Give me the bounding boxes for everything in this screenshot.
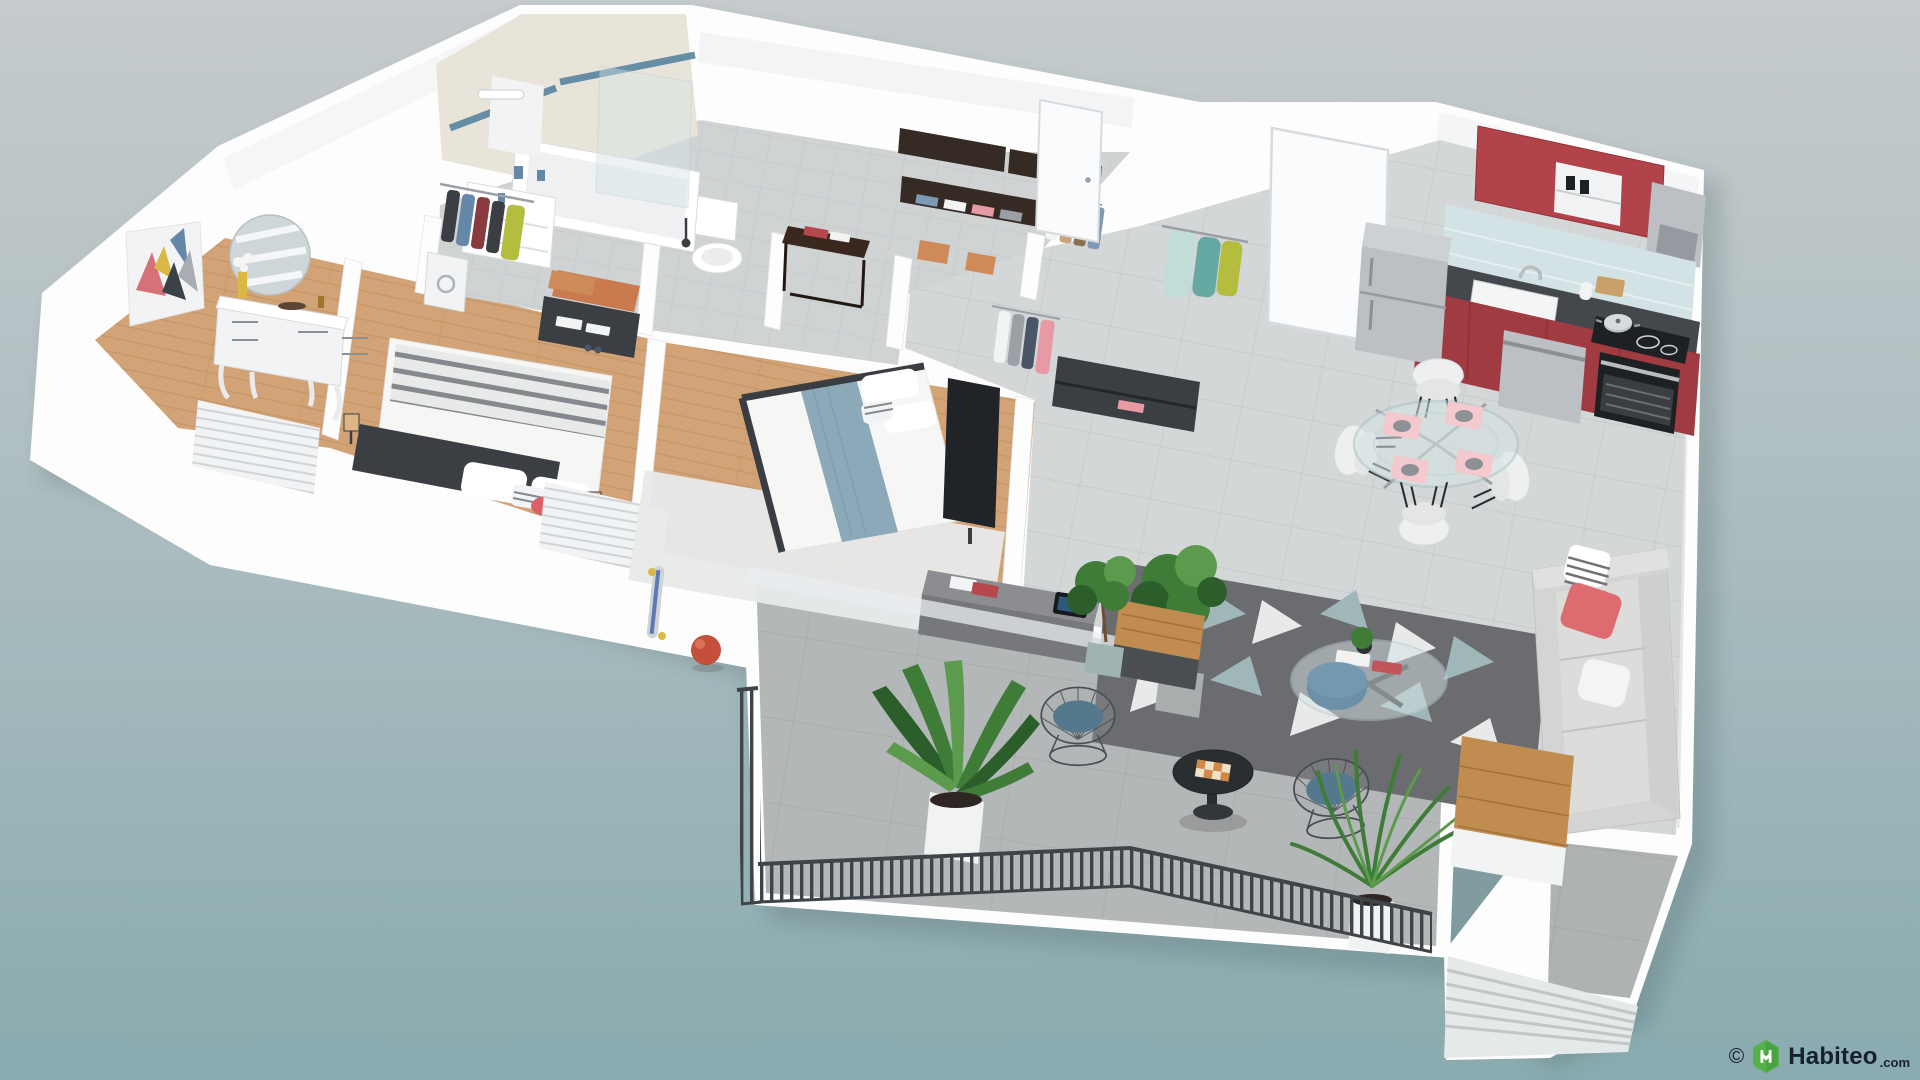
- shower-glass-screen: [596, 66, 692, 208]
- washing-machine: [424, 252, 468, 312]
- floorplan-3d-render: [0, 0, 1920, 1080]
- refrigerator: [1355, 222, 1452, 366]
- brand-suffix: .com: [1880, 1055, 1910, 1073]
- dining-table: [1354, 401, 1518, 488]
- wall-art: [126, 222, 204, 326]
- tree-pot: [1084, 642, 1124, 678]
- render-viewport: © Habiteo .com: [0, 0, 1920, 1080]
- bedroom2-bed: [742, 366, 964, 552]
- console-tray: [278, 302, 306, 310]
- toiletries: [514, 166, 523, 179]
- tv-panel: [943, 378, 1000, 544]
- watermark: © Habiteo .com: [1729, 1040, 1910, 1073]
- interior-door: [1036, 100, 1102, 242]
- table-plant: [1351, 627, 1373, 649]
- copyright-symbol: ©: [1729, 1045, 1744, 1069]
- habiteo-hexagon-logo: [1751, 1040, 1781, 1073]
- brand-name: Habiteo: [1788, 1043, 1877, 1071]
- flower-vase: [238, 272, 247, 298]
- outdoor-bar: [1450, 736, 1574, 886]
- bathroom-mirror: [488, 76, 544, 158]
- terrace-wood-bench: [1110, 600, 1205, 690]
- console-candle: [318, 296, 324, 308]
- pouf: [1307, 662, 1367, 710]
- wall-lamp: [478, 90, 524, 99]
